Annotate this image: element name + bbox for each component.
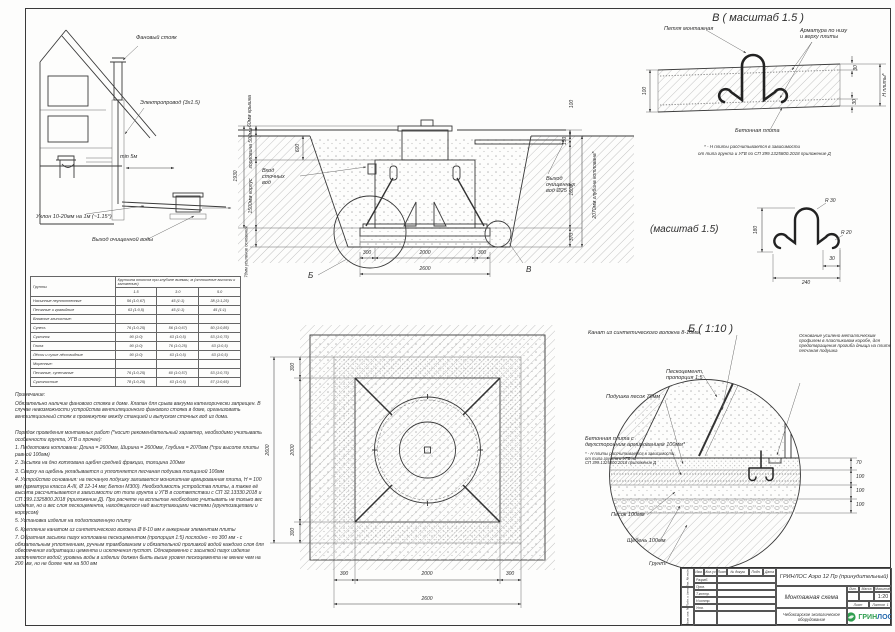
plan-dim-2000-h: 2000 <box>421 572 432 578</box>
label-electric-wire: Электропровод (3х1.5) <box>140 100 200 106</box>
soil-cell <box>115 360 157 369</box>
soil-cell: Глина <box>31 342 116 351</box>
soil-cell: Песчаные и гравийные <box>31 306 116 315</box>
stamp-logo-cell: ГРИНЛОС <box>847 608 892 626</box>
soil-cell: 60 (1:0,57) <box>157 369 199 378</box>
table-header-row: Грунты Крутизна откосов при глубине выем… <box>31 277 241 288</box>
soil-cell: Моренные: <box>31 360 116 369</box>
title-block: Инв. № подл. Подп. и дата Взам. инв. № И… <box>680 567 891 625</box>
plan-dim-2000-v: 2000 <box>291 444 297 455</box>
table-row: Песчаные и гравийные63 (1:0,5)45 (1:1)45… <box>31 306 241 315</box>
soil-cell: Суглинок <box>31 333 116 342</box>
label-rebar: Арматура по низуи верху плиты <box>800 28 847 40</box>
house-sketch <box>26 18 236 268</box>
stamp-empty-cell <box>717 583 776 590</box>
soil-cell: 90 (1:0) <box>115 351 157 360</box>
soil-cell <box>199 360 241 369</box>
soil-cell: 90 (1:0) <box>115 342 157 351</box>
stamp-hdr-data: Дата <box>763 568 776 576</box>
soil-cell: 57 (1:0,65) <box>199 378 241 387</box>
soil-cell: 63 (1:0,5) <box>157 351 199 360</box>
table-row: Насыпные неуплотненные56 (1:0,67)45 (1:1… <box>31 297 241 306</box>
soil-cell: 56 (1:0,67) <box>115 297 157 306</box>
label-sand-layer: Песок 100мм <box>611 512 645 518</box>
soil-cell: 63 (1:0,5) <box>157 378 199 387</box>
slope-header-cell: Крутизна откосов при глубине выемки, м (… <box>115 277 240 288</box>
dim-r20: R 20 <box>841 231 852 237</box>
label-min-5m: min 5м <box>120 154 137 160</box>
dim-600: 600 <box>296 144 302 152</box>
drawing-sheet: Фановый стояк Электропровод (3х1.5) min … <box>0 0 895 632</box>
dim-pit-depth: 2070мм глубина котлована* <box>593 151 599 218</box>
dim-slab-100: 100 <box>643 87 649 95</box>
detail-b-footnote: * - Н плиты рассчитывается в зависимости… <box>585 452 674 466</box>
dim-240: 240 <box>802 281 810 287</box>
stamp-empty-cell <box>717 576 776 583</box>
stamp-lit-value <box>847 592 859 601</box>
stamp-staff-utv: Утв. <box>694 604 717 611</box>
dim-100-sand: 100 <box>856 489 864 495</box>
dim-2600: 2600 <box>419 267 430 273</box>
stamp-hdr-podp: Подп. <box>749 568 763 576</box>
table-row: Лёссы и сухие лёссовидные90 (1:0)63 (1:0… <box>31 351 241 360</box>
label-mounting-loop: Петля монтажная <box>664 26 713 32</box>
plan-view <box>262 318 562 618</box>
notes-item: 4. Устройство основания: на песчаную под… <box>15 477 268 516</box>
dim-cover-60mm: 60мм крышка <box>248 95 254 127</box>
soil-cell <box>199 315 241 324</box>
soil-cell: Суглинистые <box>31 378 116 387</box>
grinlos-logo: ГРИНЛОС <box>847 612 892 622</box>
soil-cell: 76 (1:0,25) <box>157 342 199 351</box>
label-synthetic-rope: Канат из синтетического волокна 8-10мм <box>588 330 700 336</box>
soil-cell: 63 (1:0,5) <box>199 351 241 360</box>
label-vent-stack: Фановый стояк <box>136 35 177 41</box>
stamp-company: Чебоксарское экологическое оборудование <box>776 608 847 626</box>
stamp-empty-cell <box>717 597 776 604</box>
stamp-sheet-name: Монтажная схема <box>776 586 847 608</box>
soil-cell: Супесь <box>31 324 116 333</box>
soil-header-cell: Грунты <box>31 277 116 297</box>
notes-item: 7. Обратная засыпка пазух котлована песк… <box>15 535 268 568</box>
soil-cell: 63 (1:0,5) <box>157 333 199 342</box>
soil-cell: 56 (1:0,67) <box>157 324 199 333</box>
stamp-hdr-koluch: Кол.уч <box>704 568 717 576</box>
soil-cell: Влажные глинистые: <box>31 315 116 324</box>
plan-dim-2600-v: 2600 <box>266 444 272 455</box>
stamp-mass-value <box>859 592 874 601</box>
dim-30-bottom: 30 <box>853 99 859 105</box>
soil-cell: Песчаные, супесчаные <box>31 369 116 378</box>
grinlos-logo-icon <box>847 612 856 622</box>
label-pipe-slope: Уклон 10-20мм на 1м (~1.15°) <box>36 214 112 220</box>
stamp-scale-value: 1:20 <box>874 592 892 601</box>
soil-cell: 50 (1:0,85) <box>199 324 241 333</box>
notes-order-title: Порядок проведения монтажных работ (*нос… <box>15 430 268 443</box>
soil-cell <box>157 360 199 369</box>
dim-r30: R 30 <box>825 199 836 205</box>
loop-detail-title: (масштаб 1.5) <box>650 224 718 235</box>
dim-base-70mm: 70мм усиление основания <box>245 226 250 277</box>
dim-370: 370 <box>570 233 576 241</box>
notes: Примечание: Обязательно наличие фанового… <box>15 392 268 570</box>
soil-cell: 90 (1:0) <box>115 333 157 342</box>
soil-cell: 45 (1:1) <box>199 306 241 315</box>
note-metal-profile: Основание усилено металлическим профилем… <box>799 333 892 353</box>
soil-cell <box>157 315 199 324</box>
label-rubble-layer: Щебень 100мм <box>627 538 666 544</box>
label-reinforced-slab: Бетонная плита сдвухсторонним армировани… <box>585 436 685 448</box>
soil-cell: 76 (1:0,25) <box>115 324 157 333</box>
dim-body-1500mm: 1500мм корпус <box>249 178 255 213</box>
plan-dim-300-top: 300 <box>291 363 297 371</box>
soil-cell: 53 (1:0,75) <box>199 333 241 342</box>
dim-2000: 2000 <box>419 251 430 257</box>
detail-mark-v: В <box>526 266 531 275</box>
stamp-doc-title: ГРИНЛОС Аэро 12 Пр (принудительный) <box>776 568 892 586</box>
plan-dim-2600-h: 2600 <box>421 597 432 603</box>
label-soil: Грунт <box>649 561 665 567</box>
stamp-empty-cell <box>717 611 776 625</box>
dim-30-top: 30 <box>854 65 860 71</box>
table-row: Суглинистые78 (1:0,25)63 (1:0,5)57 (1:0,… <box>31 378 241 387</box>
soil-cell <box>115 315 157 324</box>
stamp-hdr-list: Лист <box>717 568 727 576</box>
plan-dim-300-bottom: 300 <box>291 528 297 536</box>
notes-paragraph: Обязательно наличие фанового стояка в до… <box>15 401 268 421</box>
dim-300-right: 300 <box>478 251 486 257</box>
dim-100-slab: 100 <box>856 475 864 481</box>
table-row: Моренные: <box>31 360 241 369</box>
notes-title: Примечание: <box>15 392 268 399</box>
notes-item: 2. Засыпка на дно котлована щебня средне… <box>15 460 268 467</box>
logo-text-green: ГРИН <box>858 614 877 621</box>
soil-table: Грунты Крутизна откосов при глубине выем… <box>30 276 241 387</box>
dim-100-top: 100 <box>570 100 576 108</box>
notes-item: 1. Подготовка котлована: Длина = 2600мм,… <box>15 445 268 458</box>
stamp-hdr-dokum: № докум. <box>727 568 749 576</box>
stamp-empty-cell <box>694 611 717 625</box>
logo-text-blue: ЛОС <box>877 614 892 621</box>
dim-150: 150 <box>563 137 569 145</box>
table-row: Песчаные, супесчаные76 (1:0,25)60 (1:0,5… <box>31 369 241 378</box>
notes-item: 3. Сверху на щебень укладывается и уплот… <box>15 469 268 476</box>
dim-slab-height: Н плиты* <box>883 73 889 96</box>
stamp-side-cell: Инв. № подл. <box>681 568 694 587</box>
dim-loop-30: 30 <box>829 257 835 263</box>
stamp-staff-prov: Пров. <box>694 583 717 590</box>
plan-dim-300-left: 300 <box>340 572 348 578</box>
soil-cell: 76 (1:0,25) <box>115 369 157 378</box>
label-sand-cushion: Подушка песок 70мм <box>606 394 660 400</box>
label-inlet: Входсточныхвод <box>262 168 285 186</box>
depth-cell: 1.5 <box>115 288 157 297</box>
notes-item: 5. Установка изделия на подготовленную п… <box>15 518 268 525</box>
dim-total-1930: 1930 <box>234 170 240 181</box>
soil-cell: 38 (1:1,25) <box>199 297 241 306</box>
soil-cell: Насыпные неуплотненные <box>31 297 116 306</box>
stamp-hdr-izm: Изм. <box>694 568 704 576</box>
soil-cell: 53 (1:0,75) <box>199 369 241 378</box>
soil-cell: 63 (1:0,5) <box>115 306 157 315</box>
table-row: Влажные глинистые: <box>31 315 241 324</box>
notes-item: 6. Крепление канатом из синтетического в… <box>15 527 268 534</box>
dim-neck-500mm: горловина 500мм <box>249 128 255 169</box>
table-row: Суглинок90 (1:0)63 (1:0,5)53 (1:0,75) <box>31 333 241 342</box>
dim-180: 180 <box>754 226 760 234</box>
detail-v-footnote-1: * - Н плиты рассчитывается в зависимости <box>704 144 800 149</box>
detail-v-title: В ( масштаб 1.5 ) <box>712 12 804 24</box>
stamp-staff-tkontr: Т.контр. <box>694 590 717 597</box>
soil-cell: 45 (1:1) <box>157 297 199 306</box>
detail-v-footnote-2: от типа грунта и УГВ по СП 399.1325800.2… <box>698 151 831 156</box>
dim-100-rubble: 100 <box>856 503 864 509</box>
soil-cell: 78 (1:0,25) <box>115 378 157 387</box>
table-row: Глина90 (1:0)76 (1:0,25)63 (1:0,5) <box>31 342 241 351</box>
dim-1600: 1600 <box>570 184 576 195</box>
label-sandcement: Пескоцемент,пропорция 1:5 <box>666 369 703 381</box>
dim-300-left: 300 <box>363 251 371 257</box>
label-clean-water-outlet: Выход очищенной воды <box>92 237 153 243</box>
depth-cell: 5.0 <box>199 288 241 297</box>
detail-mark-b: Б <box>308 272 313 281</box>
label-concrete-slab: Бетонная плита <box>735 128 780 134</box>
stamp-staff-razrab: Разраб. <box>694 576 717 583</box>
section-view <box>230 82 642 307</box>
plan-dim-300-right: 300 <box>506 572 514 578</box>
stamp-side-cell: Взам. инв. № <box>681 607 694 626</box>
stamp-sheets-cell: Листов1 <box>869 601 892 608</box>
stamp-empty-cell <box>717 604 776 611</box>
soil-cell: 45 (1:1) <box>157 306 199 315</box>
dim-70: 70 <box>856 461 862 467</box>
stamp-side-cell: Подп. и дата <box>681 587 694 606</box>
loop-detail-drawing <box>645 190 890 300</box>
soil-cell: Лёссы и сухие лёссовидные <box>31 351 116 360</box>
depth-cell: 3.0 <box>157 288 199 297</box>
soil-cell: 63 (1:0,5) <box>199 342 241 351</box>
stamp-empty-cell <box>717 590 776 597</box>
table-row: Супесь76 (1:0,25)56 (1:0,67)50 (1:0,85) <box>31 324 241 333</box>
stamp-sheet-cell: Лист <box>847 601 869 608</box>
stamp-staff-nkontr: Н.контр. <box>694 597 717 604</box>
